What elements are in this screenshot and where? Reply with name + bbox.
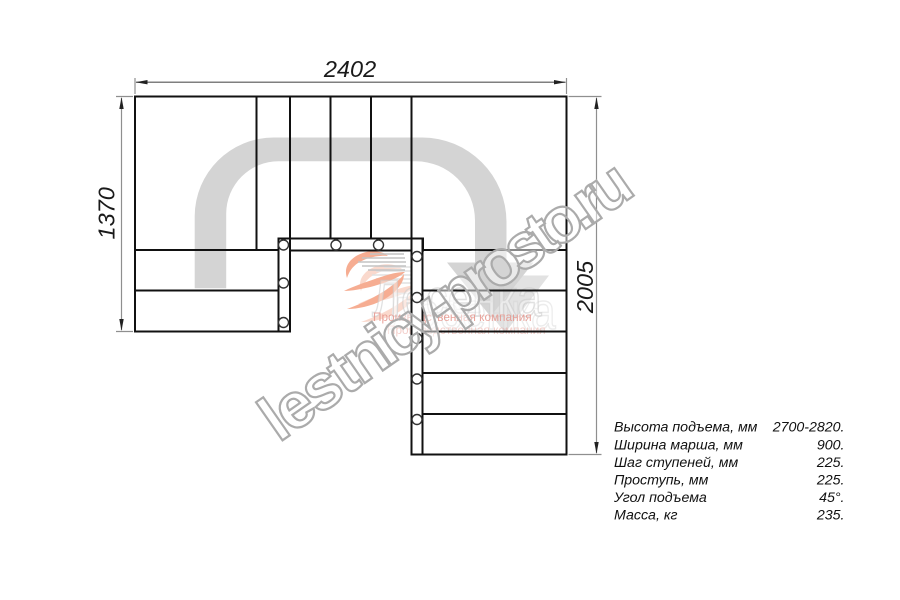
svg-text:900.: 900. [817,437,845,453]
svg-text:225.: 225. [816,473,845,489]
svg-text:Проступь, мм: Проступь, мм [614,473,709,489]
svg-text:45°.: 45°. [819,490,844,506]
svg-text:1370: 1370 [94,187,120,239]
svg-text:Масса, кг: Масса, кг [614,508,678,524]
svg-text:225.: 225. [816,455,845,471]
svg-text:2005: 2005 [572,260,598,314]
svg-text:Высота подъема, мм: Высота подъема, мм [614,420,758,436]
svg-text:2700-2820.: 2700-2820. [772,420,845,436]
svg-text:Шаг ступеней, мм: Шаг ступеней, мм [614,455,738,471]
svg-text:Ширина марша, мм: Ширина марша, мм [614,437,743,453]
svg-text:235.: 235. [816,508,845,524]
svg-text:2402: 2402 [323,56,376,82]
svg-text:Угол подъема: Угол подъема [613,490,707,506]
